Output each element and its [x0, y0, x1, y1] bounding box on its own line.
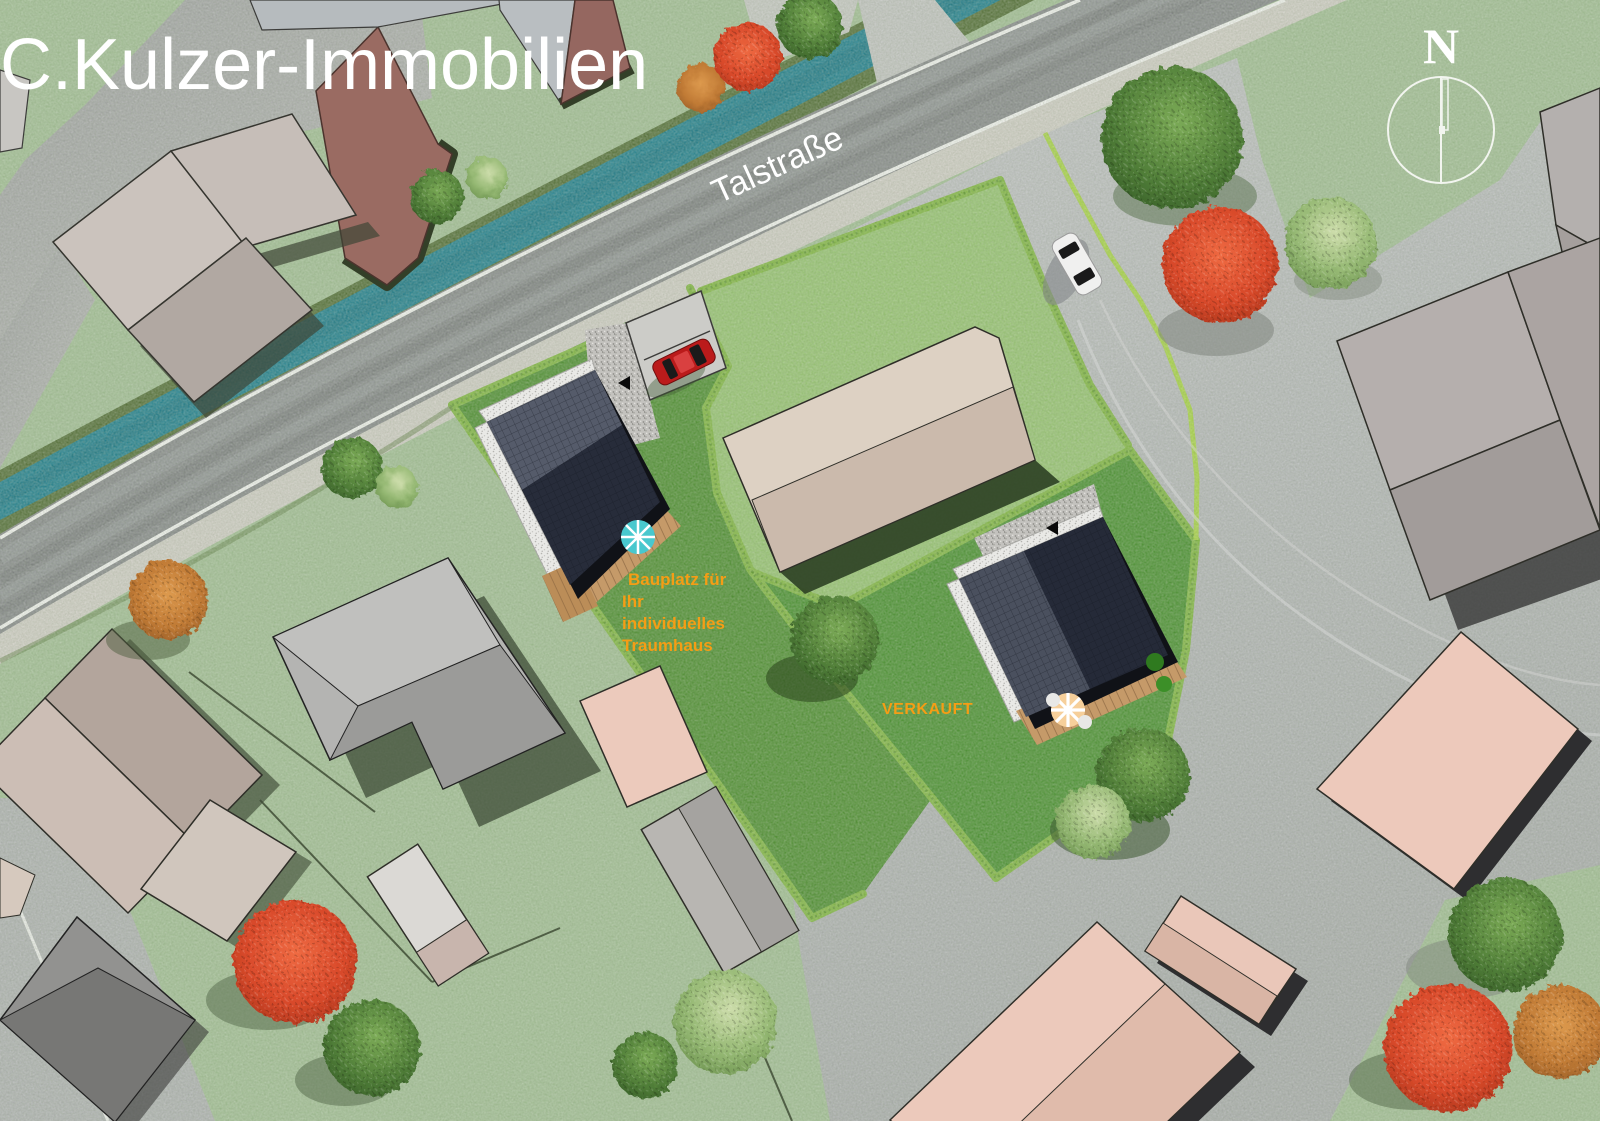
svg-text:Traumhaus: Traumhaus	[622, 636, 713, 655]
svg-text:individuelles: individuelles	[622, 614, 725, 633]
svg-text:C.Kulzer-Immobilien: C.Kulzer-Immobilien	[0, 25, 648, 105]
svg-text:Bauplatz für: Bauplatz für	[628, 570, 727, 589]
svg-text:VERKAUFT: VERKAUFT	[882, 701, 973, 718]
svg-text:Ihr: Ihr	[622, 592, 644, 611]
svg-text:N: N	[1423, 18, 1459, 74]
